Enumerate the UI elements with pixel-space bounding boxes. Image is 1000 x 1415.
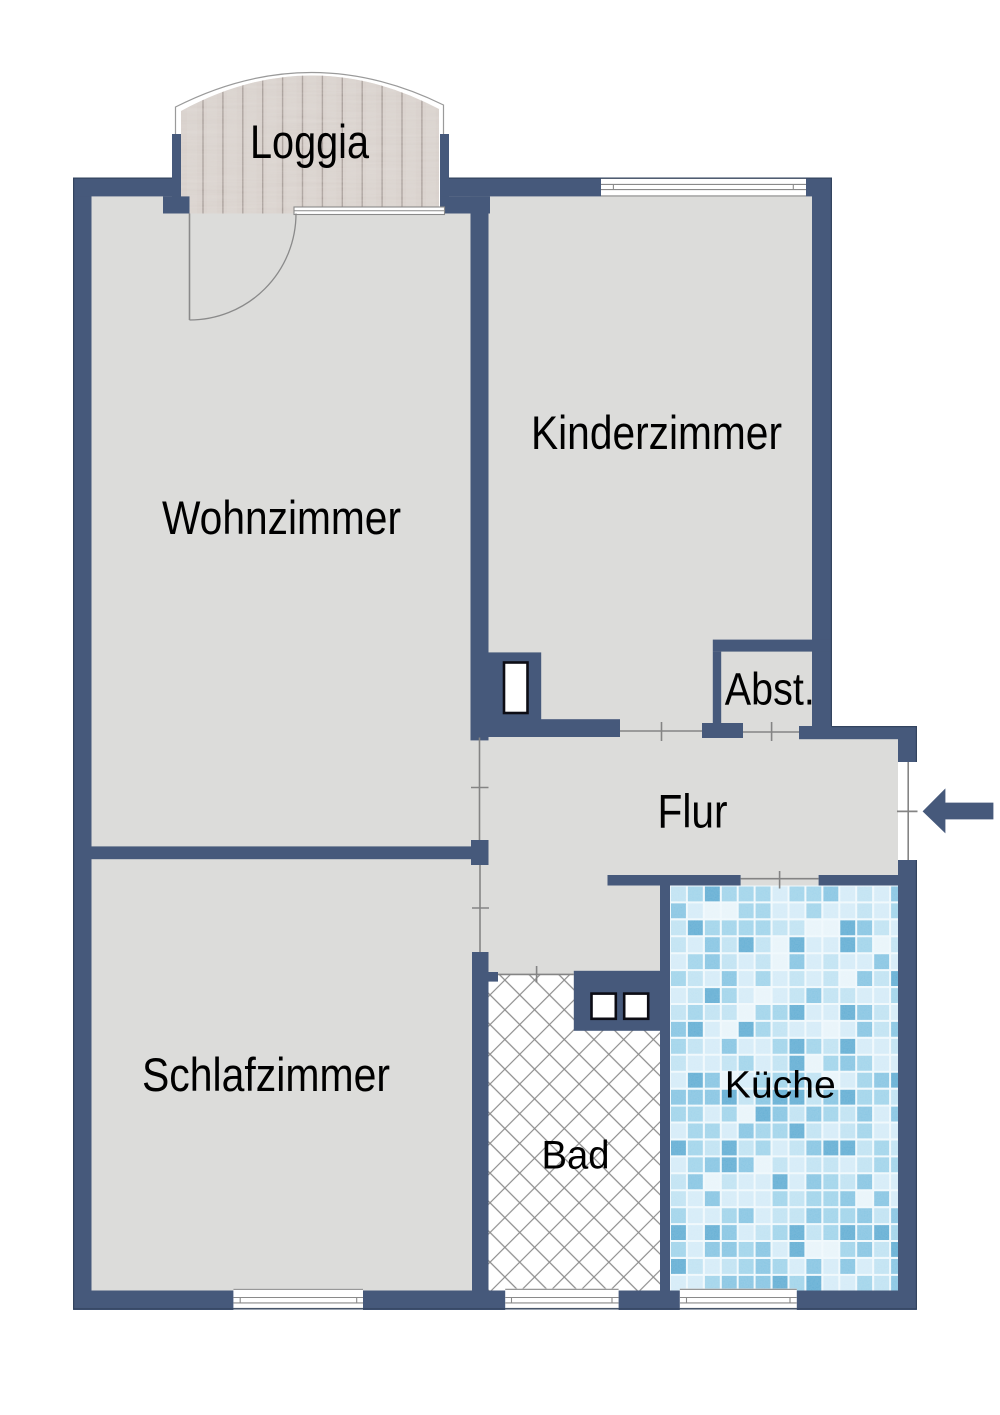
svg-text:Loggia: Loggia	[250, 115, 370, 168]
svg-text:Kinderzimmer: Kinderzimmer	[531, 406, 782, 459]
svg-text:Küche: Küche	[725, 1064, 836, 1106]
svg-text:Flur: Flur	[658, 785, 728, 838]
svg-text:Schlafzimmer: Schlafzimmer	[142, 1048, 390, 1101]
svg-text:Wohnzimmer: Wohnzimmer	[162, 491, 401, 544]
svg-text:Abst.: Abst.	[725, 663, 815, 714]
svg-text:Bad: Bad	[542, 1133, 610, 1177]
